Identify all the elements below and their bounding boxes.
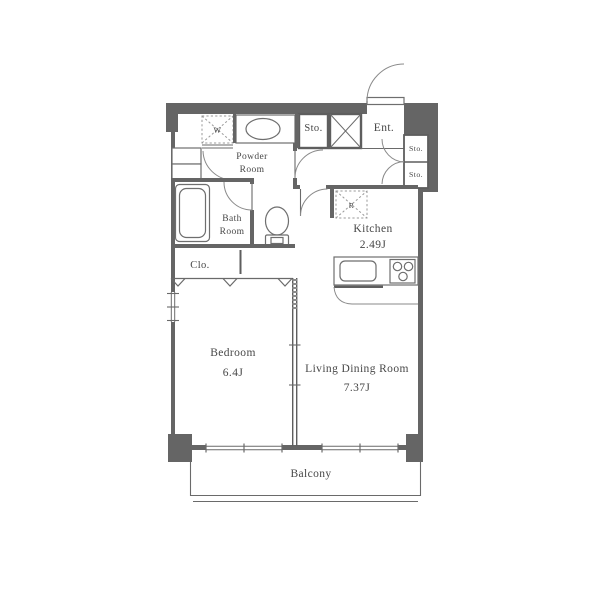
living-dining-size-label: 7.37J <box>344 382 371 394</box>
kitchen-floor-boundary <box>334 287 418 304</box>
bottom-right-pillar <box>406 434 423 462</box>
shaft-box <box>330 114 361 148</box>
storage-right2-label: Sto. <box>409 170 423 179</box>
bath-room-label2: Room <box>220 227 245 237</box>
pipe-space-boxes <box>172 148 201 180</box>
balcony-label: Balcony <box>290 468 331 480</box>
bath-door-arc <box>224 182 252 210</box>
storage-top-label: Sto. <box>304 123 322 134</box>
storage-right1-label: Sto. <box>409 144 423 153</box>
vanity-sink <box>233 114 295 143</box>
toilet-icon <box>266 207 289 246</box>
bedroom-label: Bedroom <box>210 347 256 359</box>
powder-room: Powder Room <box>203 151 289 246</box>
bottom-wall-seg2 <box>282 445 322 450</box>
kitchen-label: Kitchen <box>353 223 392 235</box>
closet-label: Clo. <box>190 260 209 271</box>
bedroom-living-partition <box>289 278 301 446</box>
kitchen-door-arc <box>301 189 328 216</box>
powder-room-label1: Powder <box>236 152 268 162</box>
balcony-outline: Balcony <box>191 462 421 502</box>
bottom-left-pillar <box>168 434 192 462</box>
storage-top-box: Sto. <box>299 114 328 148</box>
bathtub-icon <box>176 185 210 242</box>
stove-icon <box>390 260 415 284</box>
refrigerator-space: R <box>336 191 367 218</box>
sink-basin-icon <box>246 119 280 140</box>
bath-room-label1: Bath <box>222 214 242 224</box>
hallway-bottom-wall <box>293 185 418 216</box>
entrance-label: Ent. <box>374 122 394 134</box>
room-labels: Bedroom 6.4J Living Dining Room 7.37J <box>210 347 409 394</box>
right-wall-upper <box>428 114 438 192</box>
floor-plan-canvas: Balcony W <box>0 0 606 602</box>
bottom-wall-seg1 <box>192 445 206 450</box>
powder-room-door-arc <box>203 151 233 180</box>
closet: Clo. <box>171 250 293 286</box>
top-left-pillar <box>166 103 178 132</box>
floor-plan-page: Balcony W <box>0 0 606 602</box>
entrance-door-leaf <box>367 98 404 105</box>
kitchen-size-label: 2.49J <box>360 239 387 251</box>
storage-right: Sto. Sto. <box>382 135 428 188</box>
washer-space: W <box>202 116 233 148</box>
bedroom-size-label: 6.4J <box>223 367 244 379</box>
hall-door-arc <box>295 150 323 178</box>
bedroom-side-window <box>167 292 179 322</box>
kitchen: R Kitchen 2.49J <box>330 189 418 304</box>
refrigerator-label: R <box>349 201 354 210</box>
left-wall-lower <box>171 322 175 435</box>
top-wall <box>166 103 367 114</box>
storage-right2-door-arc <box>382 162 404 185</box>
right-wall-lower <box>418 190 423 435</box>
kitchen-counter <box>334 257 418 304</box>
closet-folding-door <box>171 279 293 287</box>
kitchen-sink-icon <box>340 261 376 281</box>
storage-right1-door-arc <box>382 139 404 162</box>
washer-label: W <box>214 126 222 135</box>
entrance-door-arc <box>367 64 404 101</box>
bottom-wall-seg3 <box>398 445 406 450</box>
entrance-door <box>367 64 404 105</box>
living-dining-label: Living Dining Room <box>305 363 409 375</box>
powder-room-label2: Room <box>240 165 265 175</box>
